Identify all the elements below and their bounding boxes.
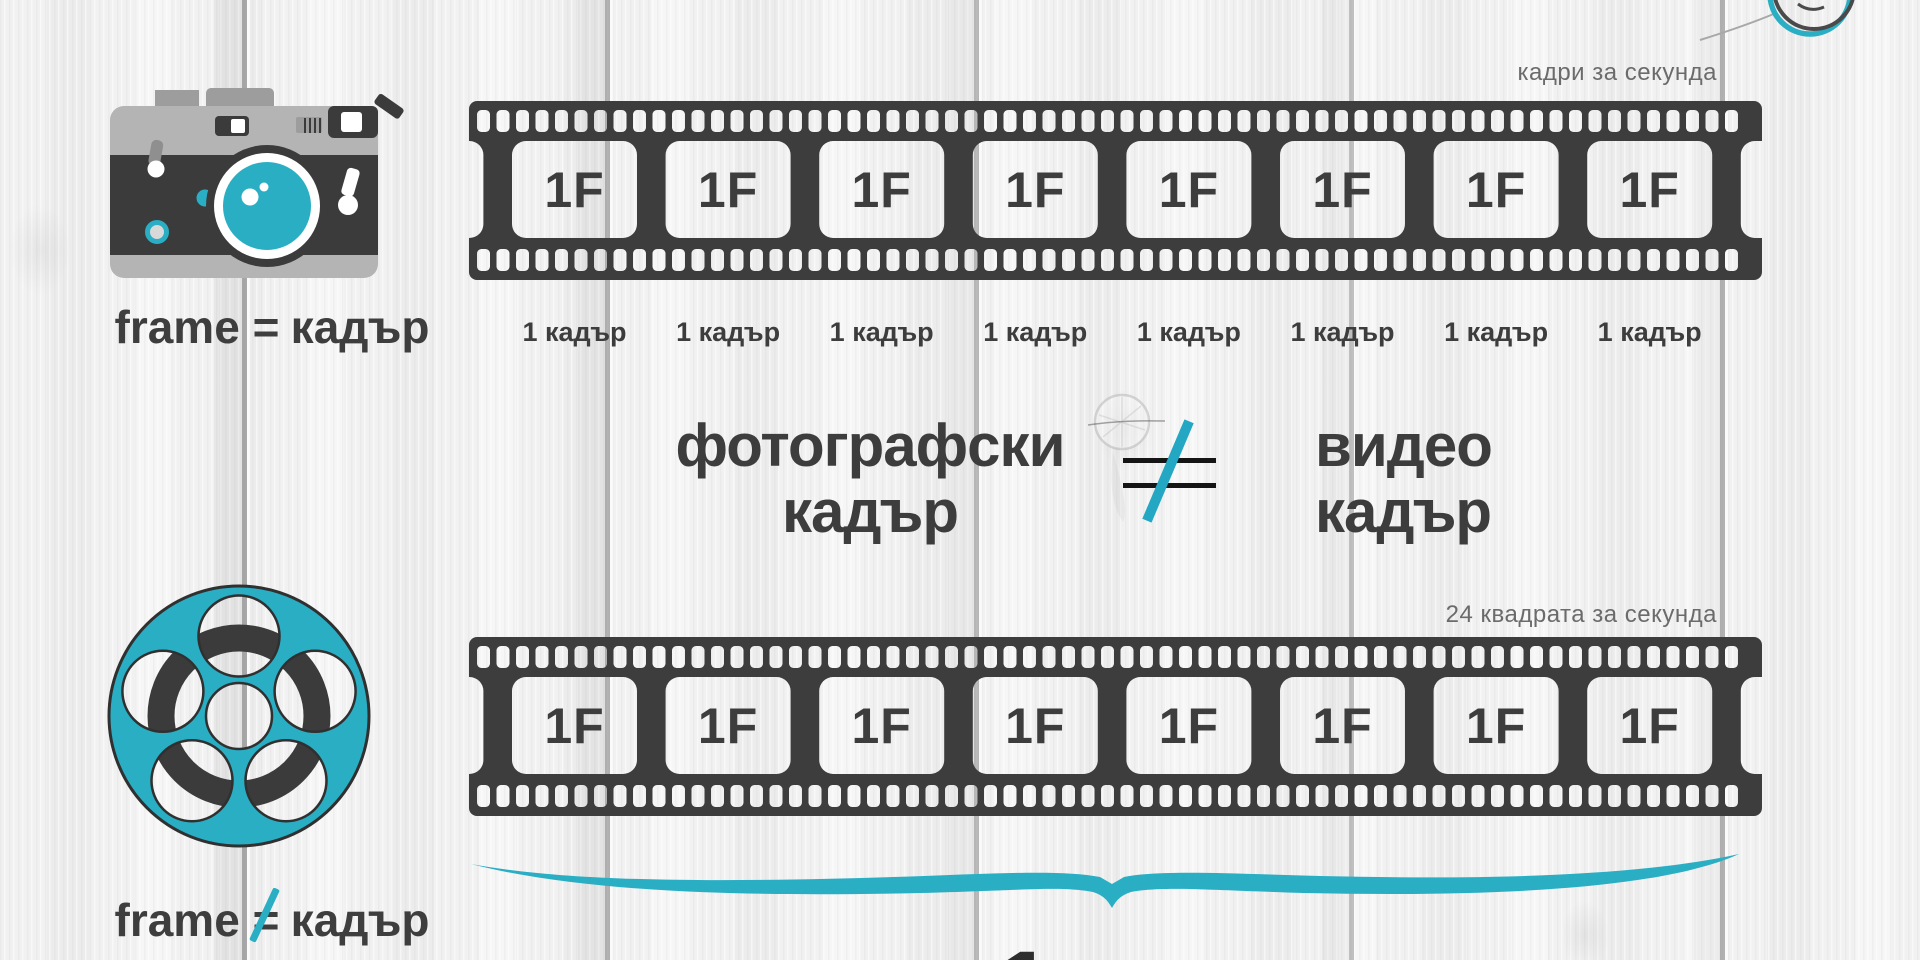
film-frame-label: 1F	[1280, 677, 1405, 774]
film-frame-label: 1F	[1434, 677, 1559, 774]
film-frame-label: 1F	[1126, 141, 1251, 238]
film-frame-label: 1F	[1434, 141, 1559, 238]
frame-caption: 1 кадър	[1570, 316, 1730, 348]
frame-word-en: frame	[115, 302, 240, 352]
film-frame-label: 1F	[666, 141, 791, 238]
frame-word-en: frame	[115, 895, 240, 945]
photographic-frame-label: фотографски кадър	[650, 413, 1090, 545]
frame-caption: 1 кадър	[648, 316, 808, 348]
frame-caption: 1 кадър	[955, 316, 1115, 348]
not-equal-bar	[1123, 483, 1216, 488]
frame-caption: 1 кадър	[1263, 316, 1423, 348]
infographic-canvas: frame = кадър кадри за секунда 24 квадра…	[0, 0, 1920, 960]
frame-caption: 1 кадър	[1109, 316, 1269, 348]
not-equal-symbol	[1118, 415, 1218, 530]
film-frame-label: 1F	[512, 677, 637, 774]
film-frame-label: 1F	[1587, 677, 1712, 774]
frame-caption: 1 кадър	[1416, 316, 1576, 348]
film-frame-label: 1F	[666, 677, 791, 774]
film-frame-label: 1F	[1280, 141, 1405, 238]
film-strip	[469, 101, 1762, 280]
frame-caption: 1 кадър	[495, 316, 655, 348]
camera-icon	[95, 80, 415, 300]
curly-brace	[440, 828, 1780, 960]
video-frame-label: видео кадър	[1315, 413, 1492, 545]
film-frame-label: 1F	[819, 141, 944, 238]
frame-word-bg: кадър	[291, 302, 430, 352]
strip-caption-24: 24 квадрата за секунда	[1317, 600, 1717, 630]
equals-sign: =	[252, 302, 279, 352]
not-equal-slash	[1142, 419, 1193, 522]
film-frame-label: 1F	[1126, 677, 1251, 774]
film-frame-label: 1F	[819, 677, 944, 774]
film-frame-label: 1F	[973, 677, 1098, 774]
film-frame-label: 1F	[973, 141, 1098, 238]
brace-label-clipped: 1	[995, 936, 1053, 960]
circular-logo	[1640, 0, 1920, 80]
frame-caption: 1 кадър	[802, 316, 962, 348]
reel-frame-equation: frame = кадър	[122, 895, 422, 945]
frame-word-bg: кадър	[291, 895, 430, 945]
film-reel-icon	[99, 578, 381, 856]
film-strip	[469, 637, 1762, 816]
not-equals-sign: =	[252, 895, 279, 945]
film-frame-label: 1F	[1587, 141, 1712, 238]
camera-frame-equation: frame = кадър	[122, 302, 422, 352]
film-frame-label: 1F	[512, 141, 637, 238]
